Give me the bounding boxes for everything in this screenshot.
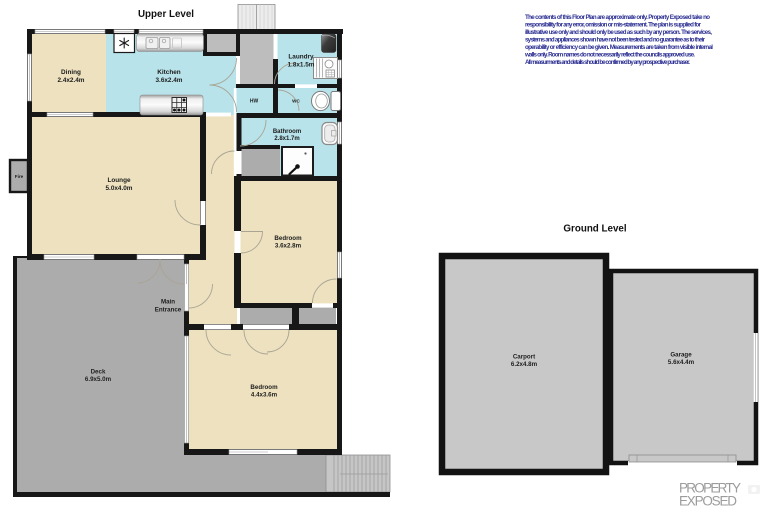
svg-text:HW: HW bbox=[250, 99, 259, 105]
svg-text:Bedroom: Bedroom bbox=[274, 235, 302, 242]
svg-text:Lounge: Lounge bbox=[107, 177, 131, 184]
svg-text:systems and appliances shown h: systems and appliances shown have not be… bbox=[525, 37, 706, 44]
svg-text:2.4x2.4m: 2.4x2.4m bbox=[57, 77, 84, 84]
svg-text:Entrance: Entrance bbox=[155, 307, 182, 314]
svg-text:illustrative use only and shou: illustrative use only and should only be… bbox=[525, 29, 712, 36]
svg-text:Dining: Dining bbox=[61, 69, 81, 76]
svg-text:EXPOSED: EXPOSED bbox=[679, 494, 737, 509]
svg-text:Kitchen: Kitchen bbox=[157, 69, 181, 76]
svg-text:WC: WC bbox=[292, 99, 300, 104]
svg-text:Deck: Deck bbox=[91, 369, 106, 376]
svg-text:1.8x1.5m: 1.8x1.5m bbox=[287, 62, 314, 69]
svg-text:5.0x4.0m: 5.0x4.0m bbox=[105, 185, 132, 192]
svg-text:responsibility for any error,: responsibility for any error, omission o… bbox=[525, 22, 702, 29]
svg-text:Bedroom: Bedroom bbox=[250, 384, 278, 391]
svg-text:The contents of this Floor Pla: The contents of this Floor Plan are appr… bbox=[525, 14, 710, 21]
svg-text:All measurments and details sh: All measurments and details should be co… bbox=[525, 59, 690, 66]
svg-text:Ground Level: Ground Level bbox=[563, 224, 626, 235]
svg-text:3.6x2.4m: 3.6x2.4m bbox=[155, 77, 182, 84]
svg-text:Garage: Garage bbox=[670, 352, 692, 359]
svg-text:6.9x5.0m: 6.9x5.0m bbox=[85, 376, 112, 383]
svg-text:4.4x3.6m: 4.4x3.6m bbox=[251, 392, 278, 399]
svg-text:2.8x1.7m: 2.8x1.7m bbox=[274, 136, 299, 142]
svg-text:Fire: Fire bbox=[15, 174, 24, 179]
svg-text:Upper Level: Upper Level bbox=[138, 9, 194, 20]
svg-text:Main: Main bbox=[161, 299, 175, 306]
svg-text:walls only. Room names do not: walls only. Room names do not necessaril… bbox=[524, 52, 695, 59]
svg-text:5.6x4.4m: 5.6x4.4m bbox=[668, 359, 695, 366]
svg-text:operability or efficiency can: operability or efficiency can be given. … bbox=[525, 44, 713, 51]
svg-text:Carport: Carport bbox=[513, 354, 535, 361]
svg-text:3.6x2.8m: 3.6x2.8m bbox=[275, 243, 302, 250]
svg-text:Bathroom: Bathroom bbox=[273, 129, 301, 135]
svg-text:6.2x4.8m: 6.2x4.8m bbox=[511, 361, 538, 368]
svg-text:Laundry: Laundry bbox=[288, 54, 314, 61]
